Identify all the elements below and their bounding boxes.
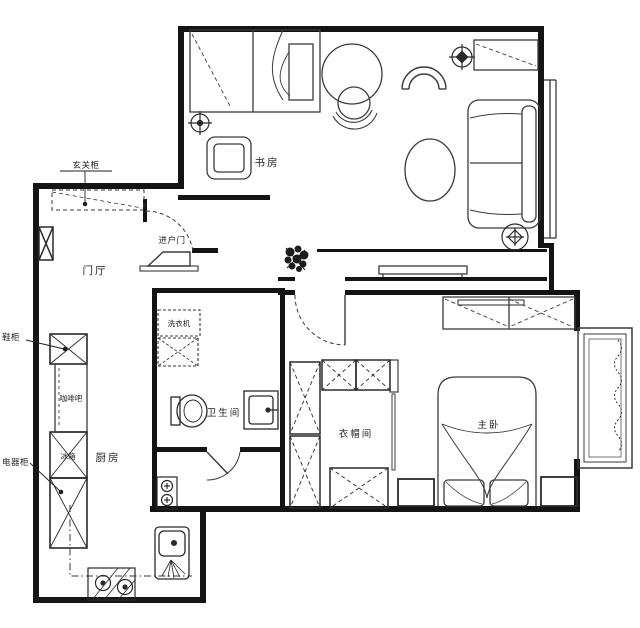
wall-step-v xyxy=(549,243,554,295)
stove xyxy=(88,568,135,600)
floor-plan-canvas: 书房 门厅 厨房 卫生间 衣帽间 主卧 玄关柜 进户门 鞋柜 咖啡吧 冰箱 电器… xyxy=(0,0,640,628)
wall-bathroom-right xyxy=(280,288,285,511)
label-entry-door: 进户门 xyxy=(158,235,185,246)
hob-fixture xyxy=(157,477,177,509)
wall-bathroom-partition-left xyxy=(152,447,207,452)
wall-south xyxy=(150,506,580,512)
wall-top xyxy=(178,26,544,32)
wall-entry-stub xyxy=(192,248,218,253)
kitchen-sink xyxy=(155,527,189,579)
label-shoe-cabinet: 鞋柜 xyxy=(2,332,20,343)
label-cloakroom: 衣帽间 xyxy=(339,428,374,440)
wall-corridor-left xyxy=(278,277,295,281)
label-study: 书房 xyxy=(255,156,280,169)
label-entry-cabinet: 玄关柜 xyxy=(72,160,99,171)
label-kitchen: 厨房 xyxy=(96,451,121,464)
master-bed xyxy=(438,377,536,506)
wall-study-south xyxy=(178,195,270,200)
study-bed xyxy=(190,30,320,112)
labels: 书房 门厅 厨房 卫生间 衣帽间 主卧 玄关柜 进户门 鞋柜 咖啡吧 冰箱 电器… xyxy=(2,156,501,468)
nightstand-left xyxy=(398,479,434,506)
shoe-cabinet-foyer xyxy=(39,227,53,260)
wall-left xyxy=(33,183,39,603)
label-foyer: 门厅 xyxy=(83,264,108,277)
bathroom-vanity xyxy=(244,391,278,429)
sofa xyxy=(468,100,540,228)
entry-cabinet xyxy=(52,190,144,210)
kitchen-cabinet-top xyxy=(50,334,87,364)
appliance-cabinet-box xyxy=(50,478,87,548)
label-appliance-cabinet: 电器柜 xyxy=(2,457,29,468)
bedroom-wardrobe xyxy=(443,297,575,329)
label-washing-machine: 洗衣机 xyxy=(168,318,191,328)
bedroom-door xyxy=(295,295,345,345)
corner-cabinet-living xyxy=(474,40,538,70)
shower-box xyxy=(158,338,198,366)
label-bathroom: 卫生间 xyxy=(207,407,242,419)
curtain-line xyxy=(615,340,622,452)
toilet xyxy=(171,395,207,427)
round-table-and-chair xyxy=(322,44,382,129)
wall-kitchen-right xyxy=(200,512,206,603)
wall-study-left xyxy=(178,26,184,189)
living-room-window xyxy=(544,80,556,238)
plant xyxy=(285,246,308,272)
label-fridge: 冰箱 xyxy=(61,451,76,461)
bathroom-door xyxy=(207,452,240,480)
arch-chair xyxy=(402,67,446,89)
study-ceiling-symbol xyxy=(188,111,212,135)
bay-window xyxy=(578,328,632,468)
wall-foyer-top xyxy=(33,183,184,189)
ceiling-symbol-living xyxy=(449,44,475,70)
wall-bathroom-partition-right xyxy=(240,447,285,452)
floor-plan-drawing: 书房 门厅 厨房 卫生间 衣帽间 主卧 玄关柜 进户门 鞋柜 咖啡吧 冰箱 电器… xyxy=(0,0,640,628)
tv-console xyxy=(379,266,467,277)
wall-corridor-right xyxy=(345,277,547,281)
study-desk xyxy=(207,137,251,179)
wall-bedroom-top-right xyxy=(345,290,580,295)
wall-living-right xyxy=(538,26,544,248)
rug-oval xyxy=(405,139,455,201)
wall-bathroom-top xyxy=(152,288,285,293)
wall-bathroom-left xyxy=(152,288,157,511)
label-coffee-bar: 咖啡吧 xyxy=(60,393,83,403)
label-master-bedroom: 主卧 xyxy=(477,419,500,431)
nightstand-right xyxy=(541,477,577,506)
